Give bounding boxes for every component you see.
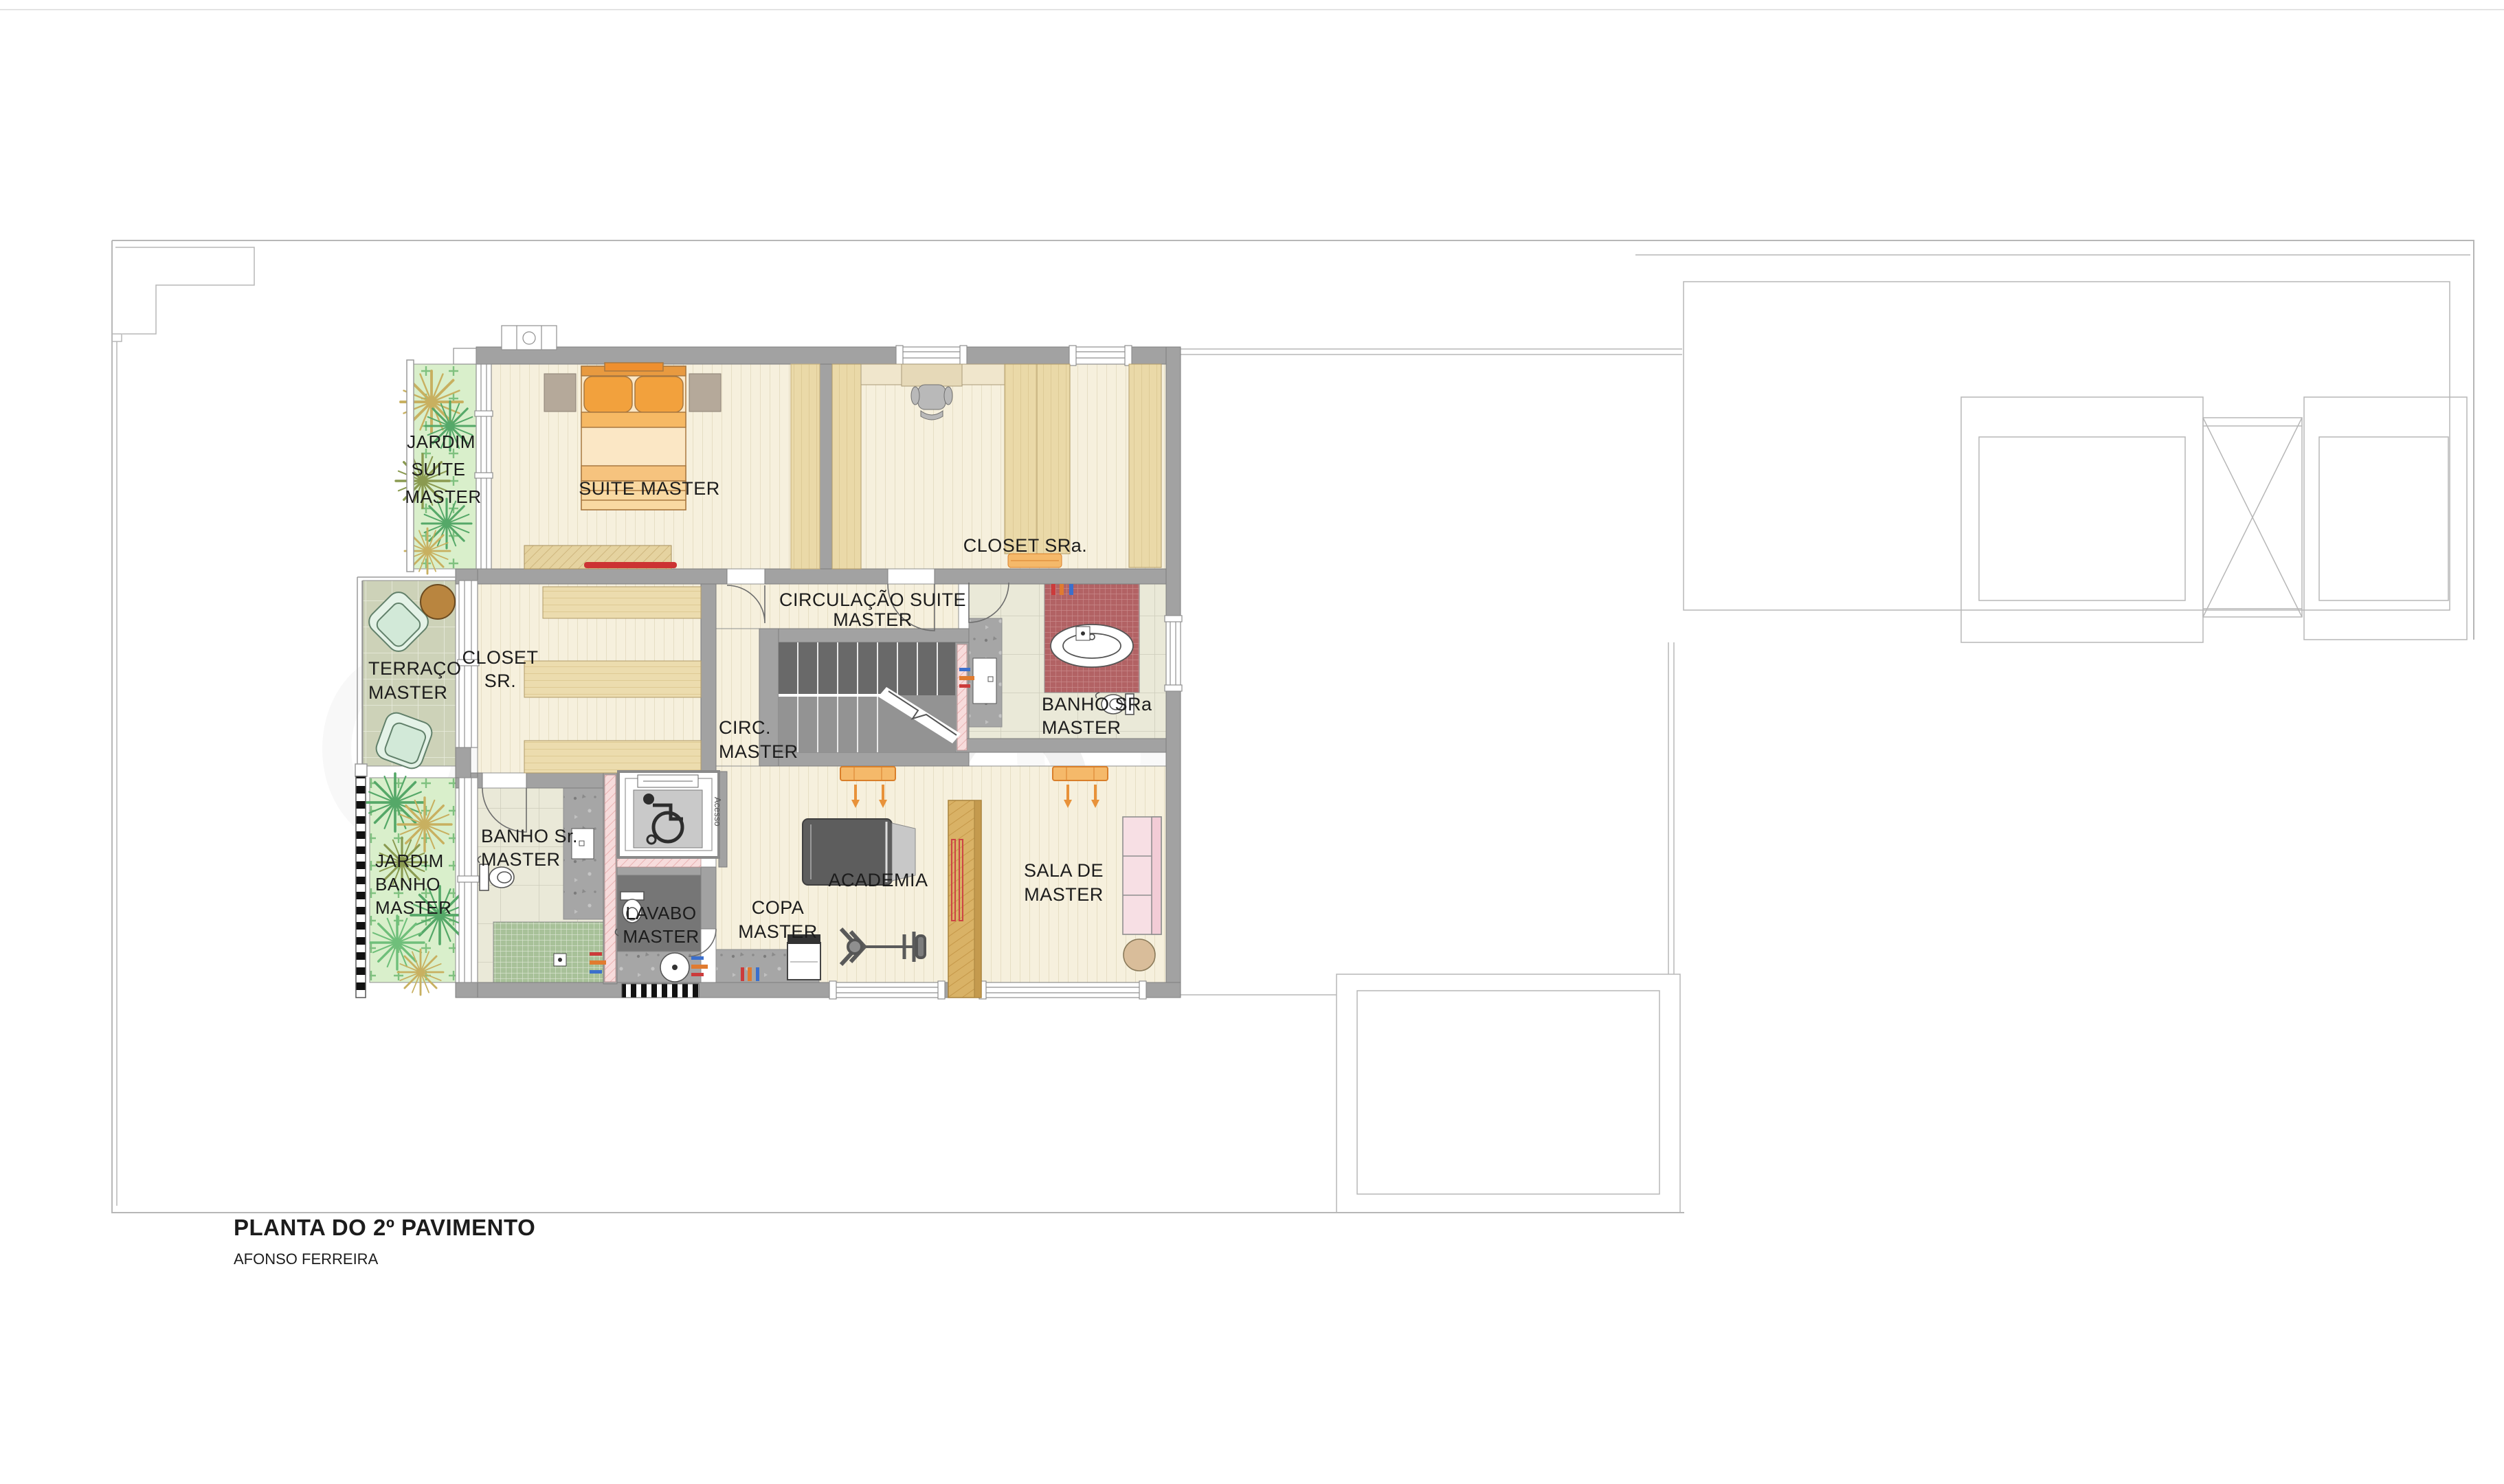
skylight-x-box <box>2203 418 2302 617</box>
vanity-sra <box>973 658 996 704</box>
label-banho-sr-2: MASTER <box>481 849 561 870</box>
window-top-2 <box>1069 346 1132 366</box>
closet-sr-ward-3 <box>524 741 701 773</box>
closet-sr-ward-1 <box>543 587 701 618</box>
label-jardim-suite-2: SUITE <box>411 459 465 480</box>
closet-sra-wardrobe-left <box>832 364 861 569</box>
nightstand-left <box>544 374 576 412</box>
tv-panel <box>948 800 981 998</box>
elevator: Acesso <box>618 772 723 857</box>
ottoman <box>1124 939 1155 971</box>
title-block: PLANTA DO 2º PAVIMENTO AFONSO FERREIRA <box>234 1215 535 1268</box>
label-copa-2: MASTER <box>738 921 818 942</box>
valve-ticks-copa <box>741 967 759 981</box>
glazing-jardim-banho <box>458 778 479 982</box>
nightstand-right <box>689 374 721 412</box>
terraco-table <box>421 585 455 619</box>
round-basin-lavabo <box>660 953 689 982</box>
staircase <box>779 642 961 752</box>
label-terraco-2: MASTER <box>368 682 448 703</box>
plan-subtitle: AFONSO FERREIRA <box>234 1250 379 1268</box>
label-circulacao-2: MASTER <box>833 609 913 630</box>
closet-sr-ward-2 <box>524 661 701 697</box>
closet-sra-bench <box>1008 554 1062 567</box>
dresser-red-runner <box>584 562 677 568</box>
label-circ-master-2: MASTER <box>719 741 798 762</box>
floorplan-canvas: HO <box>0 0 2504 1484</box>
closet-sr-furniture <box>524 587 701 773</box>
label-jardim-banho-1: JARDIM <box>375 851 444 871</box>
closet-sra-wardrobe-right <box>1129 364 1161 567</box>
label-sala-1: SALA DE <box>1024 860 1104 881</box>
window-bottom-2 <box>979 981 1146 999</box>
label-closet-sr-1: CLOSET <box>462 647 538 668</box>
plan-title: PLANTA DO 2º PAVIMENTO <box>234 1215 535 1240</box>
bathtub <box>1051 625 1133 667</box>
glazing-jardim-suite <box>475 364 493 569</box>
elevator-access-label: Acesso <box>713 797 723 827</box>
label-banho-sra-2: MASTER <box>1042 717 1121 738</box>
label-jardim-suite-3: MASTER <box>405 486 481 507</box>
window-top-1 <box>896 346 967 366</box>
label-circulacao-1: CIRCULAÇÃO SUITE <box>779 589 966 610</box>
label-copa-1: COPA <box>752 897 805 918</box>
suite-wardrobe <box>791 364 820 569</box>
label-circ-master-1: CIRC. <box>719 717 771 738</box>
valve-ticks-lavabo <box>691 956 708 976</box>
label-banho-sr-1: BANHO Sr. <box>481 826 578 846</box>
mosaic-shower-sr <box>493 922 603 982</box>
sofa <box>1123 817 1161 934</box>
label-terraco-1: TERRAÇO <box>368 658 462 679</box>
label-jardim-banho-3: MASTER <box>375 897 451 918</box>
label-suite-master: SUITE MASTER <box>579 478 720 499</box>
shower-drain-sra <box>1076 627 1090 640</box>
label-lavabo-1: LAVABO <box>625 903 696 923</box>
label-sala-2: MASTER <box>1024 884 1104 905</box>
desk <box>902 364 962 386</box>
valve-ticks-sra-top <box>1051 584 1073 595</box>
floor-grate <box>622 984 699 998</box>
label-closet-sra: CLOSET SRa. <box>963 535 1088 556</box>
vent-box <box>502 326 557 350</box>
label-academia: ACADEMIA <box>828 870 928 890</box>
label-closet-sr-2: SR. <box>484 671 517 691</box>
window-right-banho <box>1165 616 1182 691</box>
label-jardim-banho-2: BANHO <box>375 874 440 895</box>
shower-drain-sr <box>554 954 566 966</box>
label-lavabo-2: MASTER <box>623 926 699 947</box>
frame-top-corner <box>454 348 476 364</box>
window-bottom-1 <box>829 981 945 999</box>
label-jardim-suite-1: JARDIM <box>407 431 476 452</box>
label-banho-sra-1: BANHO SRa <box>1042 694 1152 715</box>
